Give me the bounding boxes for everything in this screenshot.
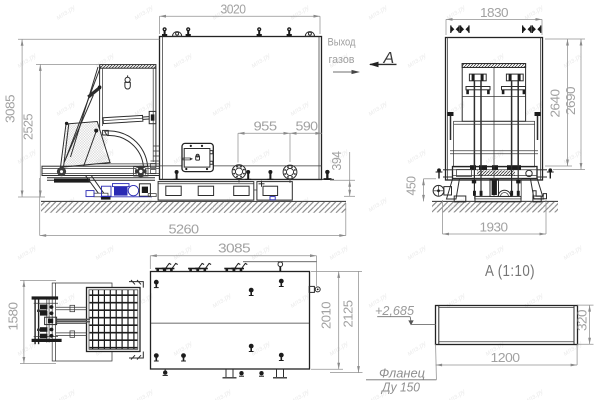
svg-text:320: 320	[576, 309, 590, 331]
svg-text:1580: 1580	[7, 302, 21, 331]
svg-text:3085: 3085	[218, 242, 251, 256]
svg-text:394: 394	[330, 151, 344, 171]
svg-text:Ду 150: Ду 150	[380, 380, 421, 395]
svg-text:1930: 1930	[480, 221, 509, 235]
svg-text:A (1:10): A (1:10)	[485, 263, 535, 280]
svg-text:450: 450	[404, 176, 418, 196]
svg-text:+2,685: +2,685	[375, 304, 414, 318]
svg-text:газов: газов	[329, 54, 355, 66]
svg-text:590: 590	[296, 119, 319, 133]
svg-text:2010: 2010	[320, 301, 334, 329]
svg-text:2525: 2525	[22, 113, 36, 140]
svg-text:3020: 3020	[221, 3, 247, 17]
svg-text:1830: 1830	[480, 6, 509, 20]
svg-text:2690: 2690	[564, 86, 578, 115]
svg-text:A: A	[383, 50, 395, 67]
svg-text:Выход: Выход	[328, 37, 356, 49]
svg-text:2125: 2125	[342, 300, 356, 328]
svg-text:5260: 5260	[169, 223, 200, 237]
svg-text:2640: 2640	[548, 89, 562, 118]
svg-text:1200: 1200	[491, 351, 521, 365]
svg-text:955: 955	[254, 119, 278, 133]
svg-text:Фланец: Фланец	[379, 366, 425, 381]
svg-text:3085: 3085	[4, 94, 18, 123]
